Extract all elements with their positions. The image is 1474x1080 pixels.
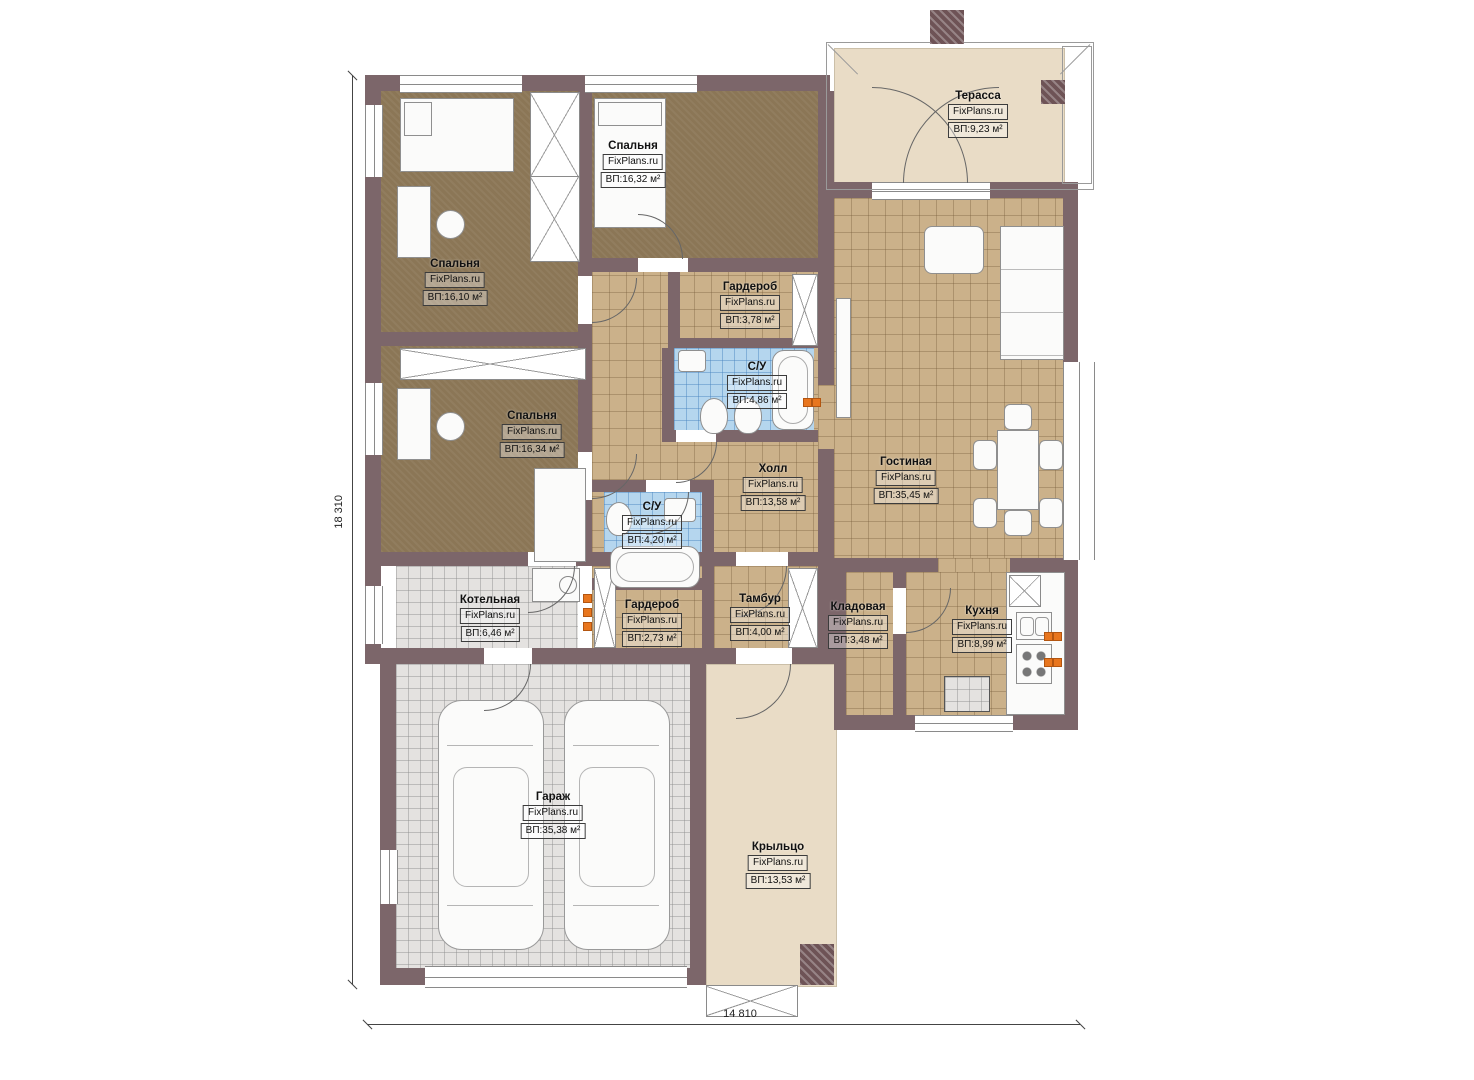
wall — [380, 332, 592, 346]
outlet-icon — [583, 594, 592, 603]
room-brand: FixPlans.ru — [743, 477, 803, 493]
wall — [668, 272, 680, 348]
bathtub-icon — [610, 546, 700, 588]
outlet-icon — [583, 622, 592, 631]
window — [400, 75, 522, 93]
room-name: Гараж — [536, 791, 570, 803]
room-area: ВП:4,86 м² — [727, 393, 786, 409]
room-brand: FixPlans.ru — [523, 805, 583, 821]
room-brand: FixPlans.ru — [720, 295, 780, 311]
bay-window — [1063, 362, 1095, 560]
window — [915, 715, 1013, 732]
room-name: Спальня — [507, 410, 557, 422]
room-label-bathroom-upper: С/У FixPlans.ru ВП:4,86 м² — [727, 361, 787, 409]
room-area: ВП:8,99 м² — [952, 637, 1011, 653]
floor-plan-canvas: Спальня FixPlans.ru ВП:16,32 м² Терасса … — [0, 0, 1474, 1080]
terrace-column — [930, 10, 964, 44]
room-label-bedroom-top: Спальня FixPlans.ru ВП:16,32 м² — [601, 140, 666, 188]
sink-icon — [678, 350, 706, 372]
dimension-line-horizontal — [367, 1024, 1080, 1025]
pillow-icon — [598, 102, 662, 126]
wall — [690, 648, 706, 985]
room-name: Тамбур — [739, 593, 781, 605]
room-label-wardrobe-lower: Гардероб FixPlans.ru ВП:2,73 м² — [622, 599, 682, 647]
room-label-bedroom-lower-left: Спальня FixPlans.ru ВП:16,34 м² — [500, 410, 565, 458]
room-area: ВП:16,32 м² — [601, 172, 666, 188]
room-name: Гардероб — [723, 281, 777, 293]
outlet-icon — [1044, 632, 1053, 641]
outlet-icon — [583, 608, 592, 617]
room-name: Кладовая — [830, 601, 885, 613]
opening-living-kitchen — [938, 558, 1010, 572]
room-area: ВП:16,34 м² — [500, 442, 565, 458]
pillow-icon — [404, 102, 432, 136]
room-label-pantry: Кладовая FixPlans.ru ВП:3,48 м² — [828, 601, 888, 649]
dining-chair-icon — [973, 440, 997, 470]
tv-stand-icon — [836, 298, 851, 418]
room-name: С/У — [643, 501, 662, 513]
car-roof — [453, 767, 529, 887]
room-label-bedroom-upper-left: Спальня FixPlans.ru ВП:16,10 м² — [423, 258, 488, 306]
bathtub-basin — [616, 552, 694, 582]
wardrobe-icon — [530, 92, 580, 178]
room-brand: FixPlans.ru — [727, 375, 787, 391]
room-label-boiler-room: Котельная FixPlans.ru ВП:6,46 м² — [460, 594, 520, 642]
car-roof — [579, 767, 655, 887]
room-name: Спальня — [608, 140, 658, 152]
appliance-icon — [944, 676, 990, 712]
room-brand: FixPlans.ru — [622, 613, 682, 629]
room-brand: FixPlans.ru — [948, 104, 1008, 120]
room-name: Гардероб — [625, 599, 679, 611]
dining-chair-icon — [1039, 498, 1063, 528]
dining-chair-icon — [1004, 510, 1032, 536]
room-brand: FixPlans.ru — [730, 607, 790, 623]
sofa-icon — [1000, 226, 1064, 360]
chair-icon — [436, 210, 465, 239]
car-windshield — [573, 745, 659, 746]
room-label-terrace: Терасса FixPlans.ru ВП:9,23 м² — [948, 90, 1008, 138]
room-brand: FixPlans.ru — [622, 515, 682, 531]
room-area: ВП:3,48 м² — [828, 633, 887, 649]
chair-icon — [436, 412, 465, 441]
wall — [380, 648, 396, 985]
terrace-railing — [1062, 46, 1092, 184]
room-area: ВП:13,58 м² — [741, 495, 806, 511]
room-label-garage: Гараж FixPlans.ru ВП:35,38 м² — [521, 791, 586, 839]
room-name: Крыльцо — [752, 841, 804, 853]
room-name: Холл — [759, 463, 788, 475]
room-name: Спальня — [430, 258, 480, 270]
dimension-label-width: 14 810 — [700, 1008, 780, 1020]
room-area: ВП:4,00 м² — [730, 625, 789, 641]
window — [365, 383, 383, 455]
bed-icon — [534, 468, 586, 562]
car-rear-window — [447, 905, 533, 906]
terrace-column — [1041, 80, 1065, 104]
dining-chair-icon — [1039, 440, 1063, 470]
opening-hall-living — [818, 385, 834, 449]
room-area: ВП:35,38 м² — [521, 823, 586, 839]
outlet-icon — [1053, 632, 1062, 641]
sink-bowl — [1020, 617, 1034, 636]
dining-chair-icon — [1004, 404, 1032, 430]
room-label-living-room: Гостиная FixPlans.ru ВП:35,45 м² — [874, 456, 939, 504]
window — [365, 105, 383, 177]
car-rear-window — [573, 905, 659, 906]
room-brand: FixPlans.ru — [952, 619, 1012, 635]
floor-porch — [706, 664, 837, 987]
door-gap — [736, 648, 792, 664]
door-gap — [736, 552, 788, 566]
dining-table-icon — [997, 430, 1039, 510]
room-brand: FixPlans.ru — [502, 424, 562, 440]
room-name: Терасса — [955, 90, 1001, 102]
room-name: Котельная — [460, 594, 520, 606]
outlet-icon — [812, 398, 821, 407]
room-brand: FixPlans.ru — [425, 272, 485, 288]
wall — [578, 258, 832, 272]
room-name: С/У — [748, 361, 767, 373]
room-brand: FixPlans.ru — [876, 470, 936, 486]
room-area: ВП:35,45 м² — [874, 488, 939, 504]
room-label-kitchen: Кухня FixPlans.ru ВП:8,99 м² — [952, 605, 1012, 653]
door-gap — [893, 588, 906, 634]
outlet-icon — [1053, 658, 1062, 667]
dimension-line-vertical — [352, 75, 353, 985]
room-label-hall: Холл FixPlans.ru ВП:13,58 м² — [741, 463, 806, 511]
wardrobe-icon — [530, 176, 580, 262]
window — [585, 75, 697, 93]
outlet-icon — [1044, 658, 1053, 667]
desk-icon — [397, 388, 431, 460]
door-gap — [578, 276, 592, 324]
porch-column — [800, 944, 834, 985]
wardrobe-icon — [400, 348, 586, 380]
toilet-icon — [700, 398, 728, 434]
dining-chair-icon — [973, 498, 997, 528]
room-area: ВП:2,73 м² — [622, 631, 681, 647]
room-name: Гостиная — [880, 456, 932, 468]
garage-door — [425, 966, 687, 988]
wall — [702, 552, 714, 664]
room-label-porch: Крыльцо FixPlans.ru ВП:13,53 м² — [746, 841, 811, 889]
car-windshield — [447, 745, 533, 746]
wardrobe-icon — [788, 568, 818, 648]
room-brand: FixPlans.ru — [748, 855, 808, 871]
room-brand: FixPlans.ru — [603, 154, 663, 170]
armchair-icon — [924, 226, 984, 274]
room-area: ВП:6,46 м² — [460, 626, 519, 642]
room-label-bathroom-lower: С/У FixPlans.ru ВП:4,20 м² — [622, 501, 682, 549]
dishwasher-icon — [1009, 575, 1041, 607]
room-label-tambur: Тамбур FixPlans.ru ВП:4,00 м² — [730, 593, 790, 641]
door-gap — [484, 648, 532, 664]
room-label-wardrobe-upper: Гардероб FixPlans.ru ВП:3,78 м² — [720, 281, 780, 329]
dimension-label-height: 18 310 — [333, 495, 345, 529]
room-brand: FixPlans.ru — [828, 615, 888, 631]
room-brand: FixPlans.ru — [460, 608, 520, 624]
room-area: ВП:13,53 м² — [746, 873, 811, 889]
room-area: ВП:9,23 м² — [948, 122, 1007, 138]
window — [365, 586, 383, 644]
window — [380, 850, 398, 904]
room-area: ВП:4,20 м² — [622, 533, 681, 549]
room-name: Кухня — [965, 605, 999, 617]
room-area: ВП:16,10 м² — [423, 290, 488, 306]
room-area: ВП:3,78 м² — [720, 313, 779, 329]
desk-icon — [397, 186, 431, 258]
door-gap — [638, 258, 688, 272]
wardrobe-icon — [792, 274, 818, 346]
wall — [662, 348, 674, 442]
outlet-icon — [803, 398, 812, 407]
